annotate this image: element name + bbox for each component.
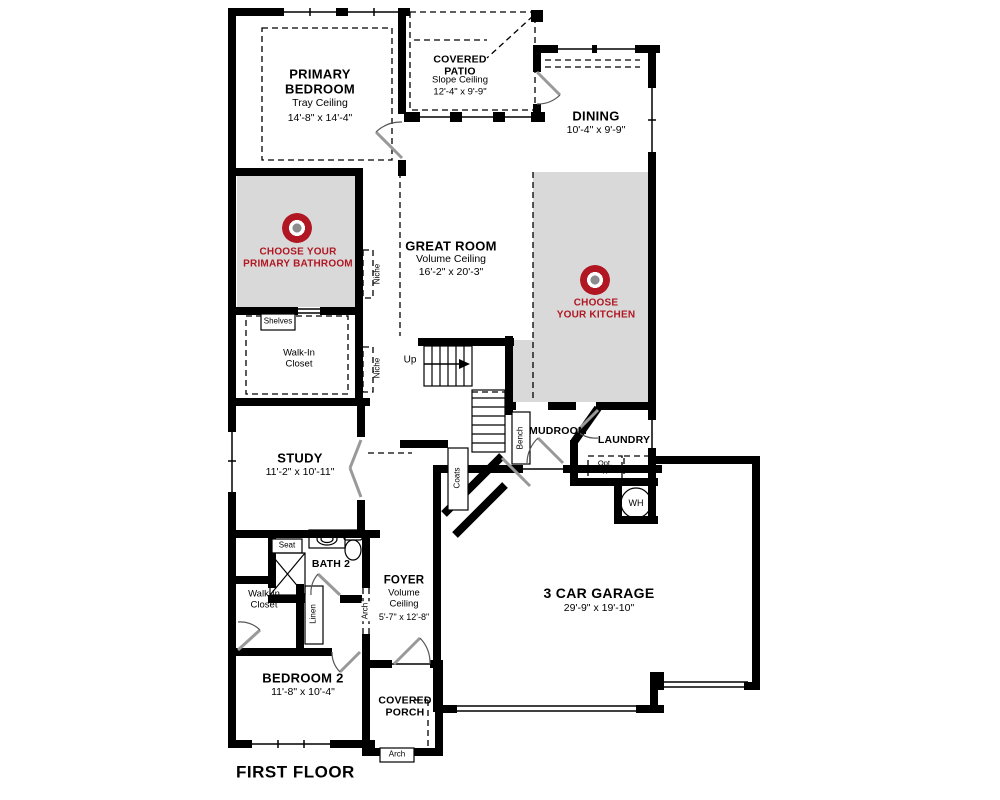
label-niche-1: Niche (374, 264, 383, 284)
dims-label-garage: 29'-9" x 19'-10" (564, 603, 634, 615)
room-label-primary-bedroom: PRIMARY BEDROOM (277, 67, 363, 96)
choose-primary-bathroom-line2[interactable]: PRIMARY BATHROOM (243, 258, 353, 269)
room-label-foyer: FOYER (384, 575, 425, 588)
label-arch-porch: Arch (389, 751, 405, 760)
room-label-covered-porch: COVERED PORCH (374, 695, 436, 719)
floorplan-linework (0, 0, 1000, 800)
label-bench: Bench (517, 427, 526, 450)
ceiling-label-covered-patio: Slope Ceiling (432, 76, 488, 87)
dims-label-foyer: 5'-7" x 12'-8" (379, 612, 429, 622)
ceiling-label-great-room: Volume Ceiling (416, 254, 486, 266)
ceiling-label-primary-bedroom: Tray Ceiling (292, 98, 348, 110)
label-opt-dryer: Opt. D (627, 464, 649, 472)
label-linen: Linen (310, 604, 319, 624)
room-label-dining: DINING (572, 110, 619, 125)
room-label-bedroom-2: BEDROOM 2 (262, 672, 343, 687)
page-title: FIRST FLOOR (236, 762, 355, 781)
primary-bathroom-target-icon[interactable] (282, 213, 312, 243)
choose-kitchen-line1[interactable]: CHOOSE (574, 297, 619, 308)
label-arch-foyer: Arch (362, 601, 371, 621)
dims-label-dining: 10'-4" x 9'-9" (567, 125, 626, 137)
label-up: Up (404, 354, 417, 365)
room-label-garage: 3 CAR GARAGE (544, 586, 655, 602)
room-label-great-room: GREAT ROOM (405, 240, 497, 255)
choose-kitchen-line2[interactable]: YOUR KITCHEN (557, 309, 636, 320)
dims-label-study: 11'-2" x 10'-11" (266, 467, 335, 479)
dims-label-primary-bedroom: 14'-8" x 14'-4" (288, 113, 353, 125)
label-walk-in-closet-2: Walk-In Closet (239, 589, 289, 610)
label-seat: Seat (279, 542, 295, 551)
label-opt-washer: Opt. W (594, 460, 616, 477)
label-shelves: Shelves (264, 318, 292, 327)
choose-primary-bathroom-line1[interactable]: CHOOSE YOUR (259, 246, 336, 257)
room-label-bath-2: BATH 2 (312, 559, 350, 571)
label-coats: Coats (454, 468, 463, 489)
label-niche-2: Niche (374, 358, 383, 378)
dims-label-great-room: 16'-2" x 20'-3" (419, 267, 484, 279)
room-label-laundry: LAUNDRY (598, 435, 650, 447)
kitchen-target-icon[interactable] (580, 265, 610, 295)
room-label-study: STUDY (277, 452, 323, 467)
floor-plan: PRIMARY BEDROOM Tray Ceiling 14'-8" x 14… (0, 0, 1000, 800)
label-water-heater: WH (629, 498, 644, 508)
room-label-mudroom: MUDROOM (529, 426, 587, 438)
ceiling-label-foyer: Volume Ceiling (381, 588, 427, 609)
dims-label-bedroom-2: 11'-8" x 10'-4" (271, 687, 335, 699)
label-walk-in-closet-primary: Walk-In Closet (273, 348, 325, 369)
dims-label-covered-patio: 12'-4" x 9'-9" (433, 88, 486, 99)
kitchen-choice-zone-ext (513, 340, 537, 402)
